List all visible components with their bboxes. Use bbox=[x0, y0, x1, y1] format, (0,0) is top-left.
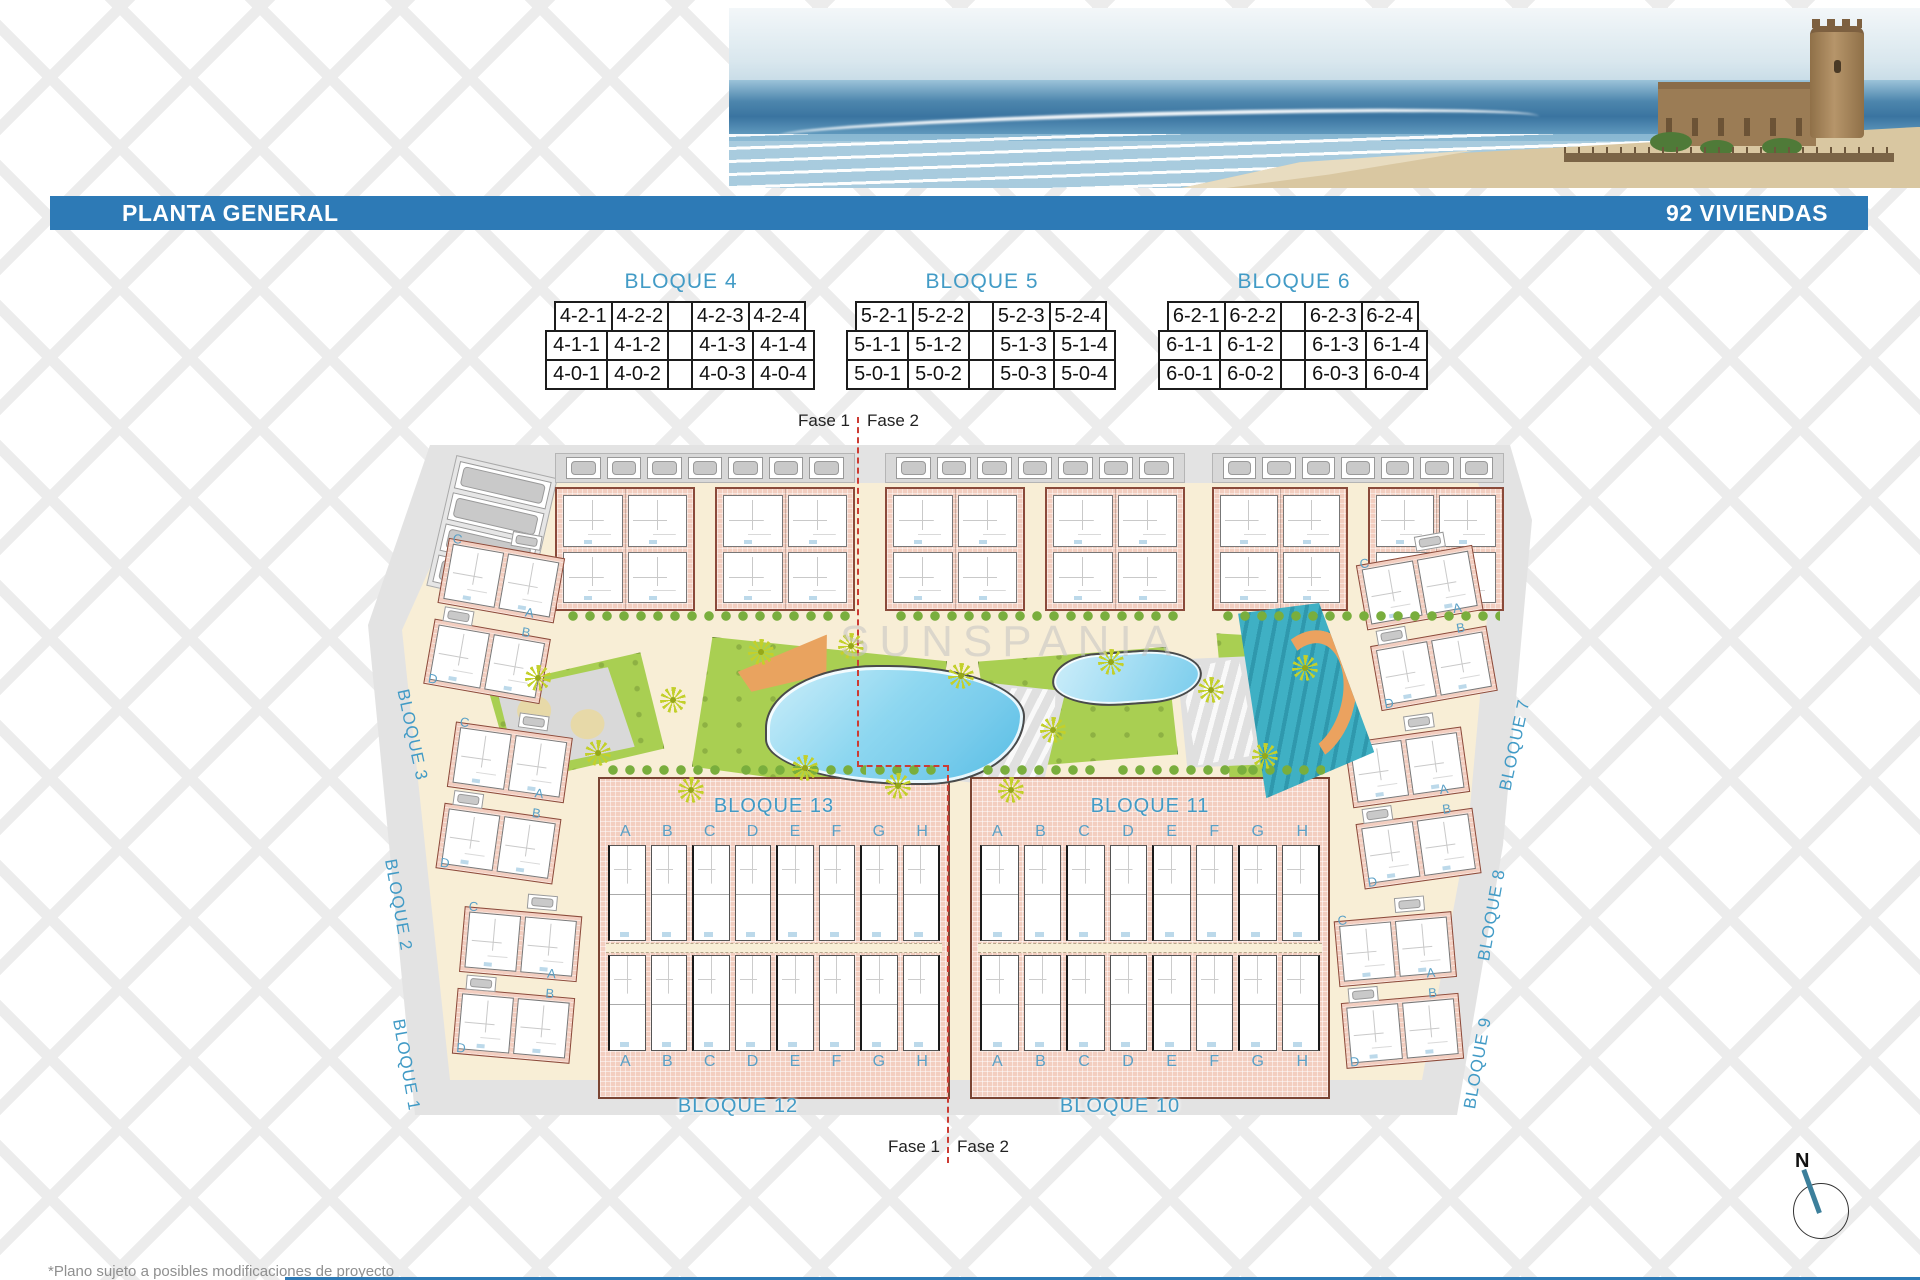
unit-interior bbox=[608, 955, 646, 1051]
unit-interior bbox=[452, 727, 511, 790]
parking-slot bbox=[688, 457, 723, 479]
palm-tree-icon bbox=[1292, 655, 1318, 681]
unit-letter: C bbox=[1337, 912, 1348, 928]
unit-interior bbox=[628, 495, 688, 547]
unit-letter: A bbox=[547, 966, 557, 982]
unit-letter: F bbox=[832, 1053, 842, 1071]
unit-letter: H bbox=[1296, 1053, 1308, 1071]
unit-cell: 5-2-3 bbox=[992, 301, 1051, 332]
table-row: 6-1-16-1-26-1-36-1-4 bbox=[1160, 330, 1428, 361]
car-icon bbox=[1144, 461, 1169, 475]
palm-tree-icon bbox=[948, 663, 974, 689]
table-row: 5-1-15-1-25-1-35-1-4 bbox=[848, 330, 1116, 361]
palm-tree-icon bbox=[1252, 743, 1278, 769]
building-block bbox=[435, 803, 561, 885]
unit-interior bbox=[1118, 495, 1178, 547]
unit-interior bbox=[893, 495, 953, 547]
site-plan: BLOQUE 13 ABCDEFGH ABCDEFGH BLOQUE 11 AB… bbox=[340, 425, 1550, 1160]
car-icon bbox=[1023, 461, 1048, 475]
side-building-cluster: CABD bbox=[451, 902, 582, 1070]
unit-cell: 6-1-4 bbox=[1365, 330, 1428, 361]
unit-interior bbox=[1339, 921, 1396, 981]
table-body: 5-2-15-2-25-2-35-2-45-1-15-1-25-1-35-1-4… bbox=[848, 301, 1116, 390]
unit-cell: 5-1-2 bbox=[907, 330, 970, 361]
unit-cell: 6-0-3 bbox=[1304, 359, 1367, 390]
unit-interior bbox=[563, 495, 623, 547]
parking-slot bbox=[1018, 457, 1053, 479]
car-icon bbox=[693, 461, 718, 475]
unit-interior bbox=[1402, 998, 1459, 1058]
unit-interior bbox=[651, 845, 688, 941]
top-building-pair-2 bbox=[885, 453, 1185, 617]
unit-letter: C bbox=[468, 899, 479, 915]
unit-interior bbox=[903, 845, 941, 941]
unit-interior bbox=[903, 955, 941, 1051]
unit-cell: 4-0-4 bbox=[752, 359, 815, 390]
unit-row bbox=[972, 955, 1328, 1051]
unit-interior bbox=[893, 552, 953, 604]
phase-label-fase-2: Fase 2 bbox=[957, 1137, 1009, 1157]
palm-tree-icon bbox=[1040, 717, 1066, 743]
car-icon bbox=[814, 461, 839, 475]
walkway bbox=[606, 943, 942, 953]
parking-slot bbox=[809, 457, 844, 479]
unit-interior bbox=[1238, 845, 1277, 941]
unit-interior bbox=[1283, 552, 1341, 604]
unit-interior bbox=[1395, 917, 1452, 977]
unit-interior bbox=[651, 955, 688, 1051]
unit-interior bbox=[1152, 955, 1191, 1051]
parking-slot bbox=[1302, 457, 1335, 479]
units-count: 92 VIVIENDAS bbox=[1666, 200, 1868, 227]
unit-cell: 6-1-3 bbox=[1304, 330, 1367, 361]
unit-cell-spacer bbox=[1280, 359, 1306, 390]
unit-interior bbox=[776, 845, 814, 941]
unit-letter-row: ABCDEFGH bbox=[600, 1053, 948, 1071]
unit-cell: 6-1-1 bbox=[1158, 330, 1221, 361]
parking-slot bbox=[896, 457, 931, 479]
unit-letter: D bbox=[1122, 823, 1134, 841]
side-building-cluster: CABD bbox=[435, 718, 574, 891]
palm-tree-icon bbox=[1098, 649, 1124, 675]
unit-cell: 4-1-1 bbox=[545, 330, 608, 361]
unit-interior bbox=[1118, 552, 1178, 604]
unit-interior bbox=[958, 495, 1018, 547]
parking-slot bbox=[769, 457, 804, 479]
unit-interior bbox=[692, 845, 730, 941]
unit-interior bbox=[723, 552, 783, 604]
building-pair bbox=[885, 487, 1185, 611]
unit-interior bbox=[819, 955, 856, 1051]
unit-table-bloque-5: BLOQUE 5 5-2-15-2-25-2-35-2-45-1-15-1-25… bbox=[848, 270, 1116, 390]
tower-building bbox=[1614, 26, 1894, 166]
unit-letter: C bbox=[1078, 823, 1090, 841]
unit-cell: 6-1-2 bbox=[1219, 330, 1282, 361]
unit-interior bbox=[1196, 955, 1234, 1051]
building-block bbox=[1212, 487, 1348, 611]
unit-letter: B bbox=[1035, 1053, 1046, 1071]
unit-interior bbox=[1283, 495, 1341, 547]
unit-cell: 6-2-1 bbox=[1167, 301, 1226, 332]
unit-letter-row: ABCDEFGH bbox=[972, 1053, 1328, 1071]
table-body: 6-2-16-2-26-2-36-2-46-1-16-1-26-1-36-1-4… bbox=[1160, 301, 1428, 390]
car-icon bbox=[1425, 461, 1448, 475]
unit-interior bbox=[819, 845, 856, 941]
car-icon bbox=[982, 461, 1007, 475]
car-icon bbox=[1346, 461, 1369, 475]
unit-interior bbox=[1282, 845, 1321, 941]
hedge-row bbox=[1220, 611, 1500, 622]
hedge-row bbox=[565, 611, 850, 622]
table-title: BLOQUE 6 bbox=[1160, 270, 1428, 294]
unit-interior bbox=[860, 955, 898, 1051]
strip-bloque-11-10: BLOQUE 11 ABCDEFGH ABCDEFGH bbox=[970, 777, 1330, 1099]
unit-letter: H bbox=[1296, 823, 1308, 841]
phase-divider-line bbox=[947, 765, 949, 1163]
unit-cell: 4-2-3 bbox=[691, 301, 750, 332]
hedge-row bbox=[605, 765, 725, 776]
beach-photo bbox=[729, 8, 1920, 188]
unit-letter-row: ABCDEFGH bbox=[972, 823, 1328, 841]
unit-cell: 4-2-4 bbox=[748, 301, 807, 332]
car-icon bbox=[571, 461, 596, 475]
unit-letter: B bbox=[662, 1053, 673, 1071]
building-block bbox=[1334, 911, 1457, 987]
page-title: PLANTA GENERAL bbox=[50, 200, 339, 227]
unit-cell: 5-1-1 bbox=[846, 330, 909, 361]
unit-interior bbox=[1238, 955, 1277, 1051]
unit-letter: H bbox=[916, 823, 928, 841]
unit-row bbox=[600, 845, 948, 941]
car-icon bbox=[652, 461, 677, 475]
unit-interior bbox=[860, 845, 898, 941]
unit-cell: 6-0-4 bbox=[1365, 359, 1428, 390]
unit-row bbox=[972, 845, 1328, 941]
table-row: 4-1-14-1-24-1-34-1-4 bbox=[547, 330, 815, 361]
unit-interior bbox=[1066, 955, 1105, 1051]
unit-interior bbox=[1439, 495, 1497, 547]
unit-cell-spacer bbox=[968, 359, 994, 390]
unit-letter: D bbox=[1349, 1054, 1360, 1070]
block-label-bloque-12: BLOQUE 12 bbox=[598, 1095, 878, 1119]
car-icon bbox=[1228, 461, 1251, 475]
unit-interior bbox=[1417, 813, 1476, 876]
unit-interior bbox=[1152, 845, 1191, 941]
garage-strip bbox=[885, 453, 1185, 483]
unit-cell: 4-2-1 bbox=[554, 301, 613, 332]
unit-cell: 5-2-1 bbox=[855, 301, 914, 332]
palm-tree-icon bbox=[885, 773, 911, 799]
block-label: BLOQUE 11 bbox=[972, 795, 1328, 818]
palm-tree-icon bbox=[792, 755, 818, 781]
hedge-row bbox=[980, 765, 1102, 776]
walkway bbox=[978, 943, 1322, 953]
building-block bbox=[1341, 993, 1464, 1069]
building-pair bbox=[555, 487, 855, 611]
unit-interior bbox=[1196, 845, 1234, 941]
building-block bbox=[459, 906, 582, 982]
parking-slot bbox=[937, 457, 972, 479]
unit-interior bbox=[788, 552, 848, 604]
palm-tree-icon bbox=[525, 665, 551, 691]
phase-divider-line bbox=[857, 417, 859, 767]
unit-letter: B bbox=[1428, 985, 1438, 1001]
unit-interior bbox=[723, 495, 783, 547]
unit-table-bloque-6: BLOQUE 6 6-2-16-2-26-2-36-2-46-1-16-1-26… bbox=[1160, 270, 1428, 390]
unit-interior bbox=[1053, 495, 1113, 547]
phase-label-fase-1: Fase 1 bbox=[740, 411, 850, 431]
garage-strip bbox=[1212, 453, 1504, 483]
unit-interior bbox=[443, 544, 504, 608]
parking-slot bbox=[977, 457, 1012, 479]
side-building-cluster: CABD bbox=[1333, 907, 1464, 1075]
unit-cell: 5-0-3 bbox=[992, 359, 1055, 390]
unit-interior bbox=[1110, 955, 1148, 1051]
unit-cell: 4-1-4 bbox=[752, 330, 815, 361]
car-icon bbox=[1348, 986, 1379, 1004]
table-row: 4-0-14-0-24-0-34-0-4 bbox=[547, 359, 815, 390]
unit-row bbox=[600, 955, 948, 1051]
unit-interior bbox=[513, 998, 570, 1058]
building-block bbox=[423, 619, 551, 704]
unit-cell: 4-0-2 bbox=[606, 359, 669, 390]
unit-letter: C bbox=[704, 1053, 716, 1071]
parking-slot bbox=[1058, 457, 1093, 479]
unit-interior bbox=[788, 495, 848, 547]
unit-letter: G bbox=[873, 823, 885, 841]
unit-interior bbox=[464, 912, 521, 972]
unit-letter: B bbox=[545, 986, 555, 1002]
unit-cell-spacer bbox=[1280, 330, 1306, 361]
unit-letter: E bbox=[790, 823, 801, 841]
unit-interior bbox=[1220, 495, 1278, 547]
unit-interior bbox=[1431, 631, 1492, 695]
car-icon bbox=[518, 712, 550, 731]
car-icon bbox=[1104, 461, 1129, 475]
title-bar: PLANTA GENERAL 92 VIVIENDAS bbox=[50, 196, 1868, 230]
parking-slot bbox=[728, 457, 763, 479]
unit-cell: 5-1-4 bbox=[1053, 330, 1116, 361]
unit-interior bbox=[958, 552, 1018, 604]
unit-cell-spacer bbox=[667, 330, 693, 361]
unit-cell: 4-0-3 bbox=[691, 359, 754, 390]
unit-cell-spacer bbox=[968, 330, 994, 361]
unit-cell: 5-0-1 bbox=[846, 359, 909, 390]
phase-label-fase-2: Fase 2 bbox=[867, 411, 919, 431]
unit-interior bbox=[1024, 845, 1062, 941]
parking-slot bbox=[1381, 457, 1414, 479]
unit-interior bbox=[735, 845, 772, 941]
unit-interior bbox=[980, 845, 1019, 941]
unit-interior bbox=[563, 552, 623, 604]
unit-cell: 5-2-2 bbox=[912, 301, 971, 332]
hedge-row bbox=[1115, 765, 1247, 776]
unit-cell-spacer bbox=[667, 301, 693, 332]
unit-interior bbox=[980, 955, 1019, 1051]
car-icon bbox=[1386, 461, 1409, 475]
unit-letter: G bbox=[1252, 823, 1264, 841]
top-building-pair-1 bbox=[555, 453, 855, 617]
parking-slot bbox=[607, 457, 642, 479]
unit-interior bbox=[692, 955, 730, 1051]
unit-interior bbox=[1110, 845, 1148, 941]
unit-letter: A bbox=[620, 1053, 631, 1071]
unit-cell-spacer bbox=[667, 359, 693, 390]
brochure-page: PLANTA GENERAL 92 VIVIENDAS BLOQUE 4 4-2… bbox=[0, 0, 1920, 1280]
unit-interior bbox=[1024, 955, 1062, 1051]
parking-slot bbox=[1460, 457, 1493, 479]
unit-letter: E bbox=[790, 1053, 801, 1071]
unit-interior bbox=[1417, 551, 1478, 615]
unit-cell-spacer bbox=[968, 301, 994, 332]
table-title: BLOQUE 4 bbox=[547, 270, 815, 294]
palm-tree-icon bbox=[678, 777, 704, 803]
parking-slot bbox=[1223, 457, 1256, 479]
table-body: 4-2-14-2-24-2-34-2-44-1-14-1-24-1-34-1-4… bbox=[547, 301, 815, 390]
unit-interior bbox=[776, 955, 814, 1051]
unit-letter: A bbox=[1439, 781, 1450, 797]
unit-letter: D bbox=[747, 823, 759, 841]
unit-interior bbox=[429, 624, 490, 688]
car-icon bbox=[774, 461, 799, 475]
building-block bbox=[452, 988, 575, 1064]
unit-letter: C bbox=[704, 823, 716, 841]
parking-slot bbox=[1420, 457, 1453, 479]
car-icon bbox=[1307, 461, 1330, 475]
phase-divider-line bbox=[857, 765, 949, 767]
parking-slot bbox=[1099, 457, 1134, 479]
unit-interior bbox=[628, 552, 688, 604]
unit-letter: C bbox=[1078, 1053, 1090, 1071]
unit-letter: A bbox=[1426, 965, 1436, 981]
unit-letter: B bbox=[1441, 801, 1452, 817]
unit-letter-row: ABCDEFGH bbox=[600, 823, 948, 841]
car-icon bbox=[1267, 461, 1290, 475]
unit-letter: A bbox=[992, 823, 1003, 841]
car-icon bbox=[901, 461, 926, 475]
unit-cell: 6-2-2 bbox=[1224, 301, 1283, 332]
phase-label-fase-1: Fase 1 bbox=[830, 1137, 940, 1157]
unit-cell: 6-0-2 bbox=[1219, 359, 1282, 390]
parking-slot bbox=[566, 457, 601, 479]
table-title: BLOQUE 5 bbox=[848, 270, 1116, 294]
table-row: 5-2-15-2-25-2-35-2-4 bbox=[857, 301, 1107, 332]
unit-letter: G bbox=[873, 1053, 885, 1071]
unit-cell-spacer bbox=[1280, 301, 1306, 332]
car-icon bbox=[733, 461, 758, 475]
unit-letter: G bbox=[1252, 1053, 1264, 1071]
strip-bloque-13-12: BLOQUE 13 ABCDEFGH ABCDEFGH bbox=[598, 777, 950, 1099]
unit-table-bloque-4: BLOQUE 4 4-2-14-2-24-2-34-2-44-1-14-1-24… bbox=[547, 270, 815, 390]
building-block bbox=[885, 487, 1025, 611]
table-row: 5-0-15-0-25-0-35-0-4 bbox=[848, 359, 1116, 390]
unit-interior bbox=[1066, 845, 1105, 941]
unit-letter: A bbox=[534, 785, 545, 801]
car-icon bbox=[1063, 461, 1088, 475]
car-icon bbox=[1394, 895, 1425, 913]
unit-letter: D bbox=[456, 1040, 467, 1056]
palm-tree-icon bbox=[585, 740, 611, 766]
unit-letter: D bbox=[1122, 1053, 1134, 1071]
garage-strip bbox=[555, 453, 855, 483]
car-icon bbox=[612, 461, 637, 475]
unit-cell: 6-2-4 bbox=[1361, 301, 1420, 332]
unit-cell: 5-0-2 bbox=[907, 359, 970, 390]
unit-letter: A bbox=[620, 823, 631, 841]
unit-interior bbox=[497, 816, 556, 879]
table-row: 4-2-14-2-24-2-34-2-4 bbox=[556, 301, 806, 332]
unit-letter: B bbox=[1035, 823, 1046, 841]
palm-tree-icon bbox=[748, 639, 774, 665]
unit-interior bbox=[441, 808, 500, 871]
palm-tree-icon bbox=[838, 633, 864, 659]
unit-interior bbox=[735, 955, 772, 1051]
building-block bbox=[715, 487, 855, 611]
parking-slot bbox=[1341, 457, 1374, 479]
car-icon bbox=[527, 894, 558, 912]
unit-letter: D bbox=[1367, 874, 1378, 890]
block-label-bloque-10: BLOQUE 10 bbox=[970, 1095, 1270, 1119]
car-icon bbox=[942, 461, 967, 475]
table-row: 6-0-16-0-26-0-36-0-4 bbox=[1160, 359, 1428, 390]
building-block bbox=[555, 487, 695, 611]
unit-cell: 6-0-1 bbox=[1158, 359, 1221, 390]
palm-tree-icon bbox=[998, 777, 1024, 803]
unit-letter: E bbox=[1166, 1053, 1177, 1071]
car-icon bbox=[465, 975, 496, 993]
unit-letter: F bbox=[1209, 1053, 1219, 1071]
unit-interior bbox=[1053, 552, 1113, 604]
table-row: 6-2-16-2-26-2-36-2-4 bbox=[1169, 301, 1419, 332]
palm-tree-icon bbox=[1198, 677, 1224, 703]
unit-interior bbox=[608, 845, 646, 941]
building-block bbox=[1045, 487, 1185, 611]
unit-cell: 4-2-2 bbox=[611, 301, 670, 332]
unit-cell: 5-0-4 bbox=[1053, 359, 1116, 390]
car-icon bbox=[1403, 712, 1435, 731]
unit-cell: 4-0-1 bbox=[545, 359, 608, 390]
unit-letter: H bbox=[916, 1053, 928, 1071]
hedge-row bbox=[893, 611, 1183, 622]
unit-cell: 5-1-3 bbox=[992, 330, 1055, 361]
unit-letter: F bbox=[1209, 823, 1219, 841]
boardwalk bbox=[1564, 153, 1894, 162]
unit-cell: 4-1-2 bbox=[606, 330, 669, 361]
unit-interior bbox=[1220, 552, 1278, 604]
unit-letter: E bbox=[1166, 823, 1177, 841]
palm-tree-icon bbox=[660, 687, 686, 713]
unit-letter: B bbox=[662, 823, 673, 841]
unit-cell: 5-2-4 bbox=[1049, 301, 1108, 332]
round-tower bbox=[1810, 26, 1864, 138]
unit-letter: F bbox=[832, 823, 842, 841]
unit-cell: 6-2-3 bbox=[1304, 301, 1363, 332]
parking-slot bbox=[1139, 457, 1174, 479]
parking-slot bbox=[647, 457, 682, 479]
car-icon bbox=[1465, 461, 1488, 475]
unit-letter: A bbox=[992, 1053, 1003, 1071]
unit-interior bbox=[1282, 955, 1321, 1051]
unit-letter: D bbox=[747, 1053, 759, 1071]
unit-interior bbox=[1405, 732, 1464, 795]
parking-slot bbox=[1262, 457, 1295, 479]
unit-cell: 4-1-3 bbox=[691, 330, 754, 361]
